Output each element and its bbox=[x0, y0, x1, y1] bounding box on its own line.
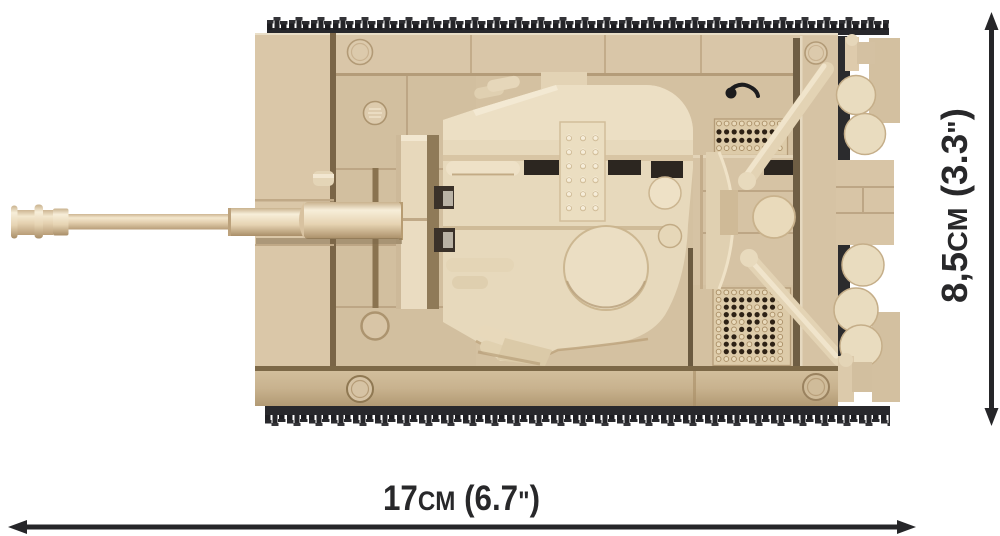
svg-text:17CM (6.7"): 17CM (6.7") bbox=[383, 479, 540, 518]
svg-text:8,5CM (3.3"): 8,5CM (3.3") bbox=[934, 108, 975, 303]
